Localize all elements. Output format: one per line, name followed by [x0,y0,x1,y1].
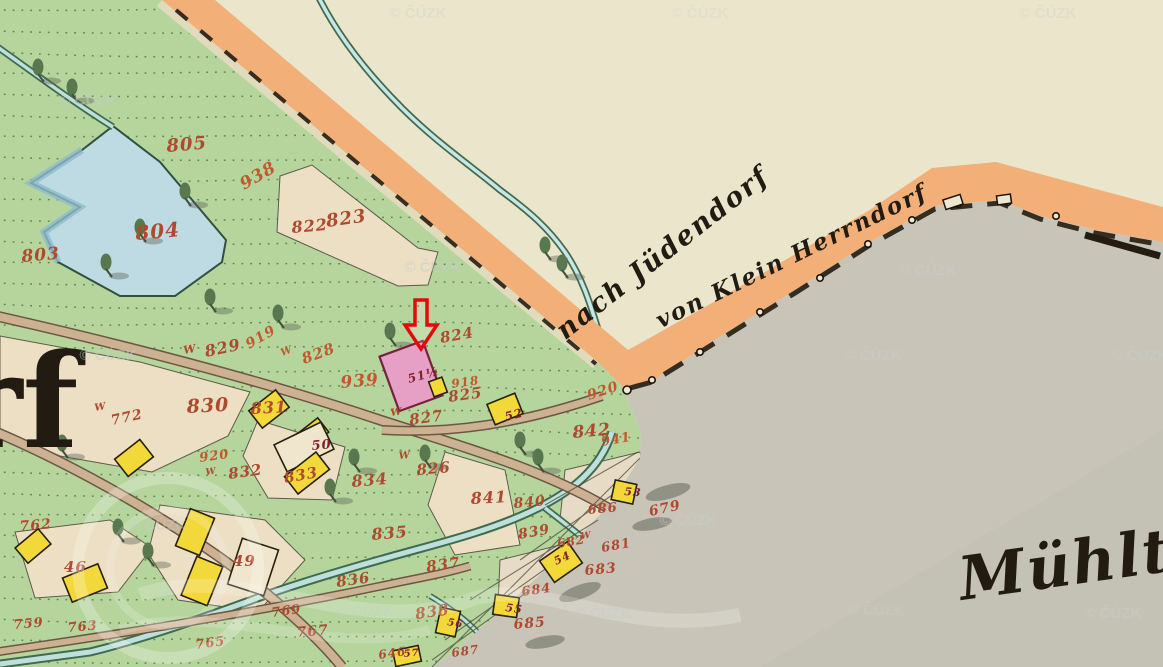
parcel-number: 826 [416,458,452,479]
map-viewport[interactable]: 803804805938822823W829919W82893983083182… [0,0,1163,667]
cuzk-watermark: © ČÚZK [80,346,137,364]
tree-crown [325,479,336,496]
cuzk-watermark: © ČÚZK [60,91,117,109]
parcel-number: 835 [370,522,409,544]
parcel-number: 57 [403,648,420,660]
tree-crown [385,323,396,340]
tree-crown [180,183,191,200]
parcel-number: 55 [505,601,524,616]
tree-crown [557,255,568,272]
parcel-number: 834 [350,469,389,491]
cadastral-map: 803804805938822823W829919W82893983083182… [0,0,1163,667]
parcel-number: 683 [584,560,618,579]
tree-crown [533,449,544,466]
parcel-number: 50 [311,437,332,454]
cuzk-watermark: © ČÚZK [672,4,729,22]
parcel-number: 685 [513,614,547,633]
cuzk-watermark: © ČÚZK [900,261,957,279]
cuzk-watermark: © ČÚZK [1020,4,1077,22]
tree-crown [205,289,216,306]
cuzk-watermark: © ČÚZK [337,602,394,620]
tree-crown [349,449,360,466]
cuzk-watermark: © ČÚZK [130,516,187,534]
tree-crown [143,543,154,560]
tree-crown [273,305,284,322]
cuzk-watermark: © ČÚZK [390,4,447,22]
tree-crown [101,254,112,271]
parcel-number: 53 [624,485,642,499]
parcel-number: 830 [185,394,230,418]
cuzk-watermark: © ČÚZK [660,511,717,529]
parcel-number: 831 [249,397,287,418]
parcel-number: 805 [165,133,208,158]
cuzk-watermark: © ČÚZK [845,346,902,364]
parcel-number: W [580,531,592,542]
house [996,194,1011,205]
cuzk-watermark: © ČÚZK [1112,346,1163,364]
parcel-number: 686 [587,500,618,518]
tree-crown [515,432,526,449]
cuzk-watermark: © ČÚZK [1085,604,1142,622]
parcel-number: 762 [19,516,53,535]
parcel-number: 841 [469,487,507,508]
parcel-number: 804 [133,217,181,245]
cuzk-watermark: © ČÚZK [575,604,632,622]
parcel-number: 840 [513,493,547,512]
place-name: rf [0,325,85,478]
parcel-number: 939 [340,370,380,393]
parcel-number: 803 [20,244,61,267]
parcel-number: 822 [290,215,329,237]
cuzk-watermark: © ČÚZK [405,258,462,276]
parcel-number: W [390,406,404,419]
cuzk-watermark: © ČÚZK [848,601,905,619]
parcel-number: W [205,467,217,478]
parcel-number: W [398,450,412,462]
parcel-number: 759 [13,615,44,633]
tree-crown [33,59,44,76]
tree-crown [540,237,551,254]
